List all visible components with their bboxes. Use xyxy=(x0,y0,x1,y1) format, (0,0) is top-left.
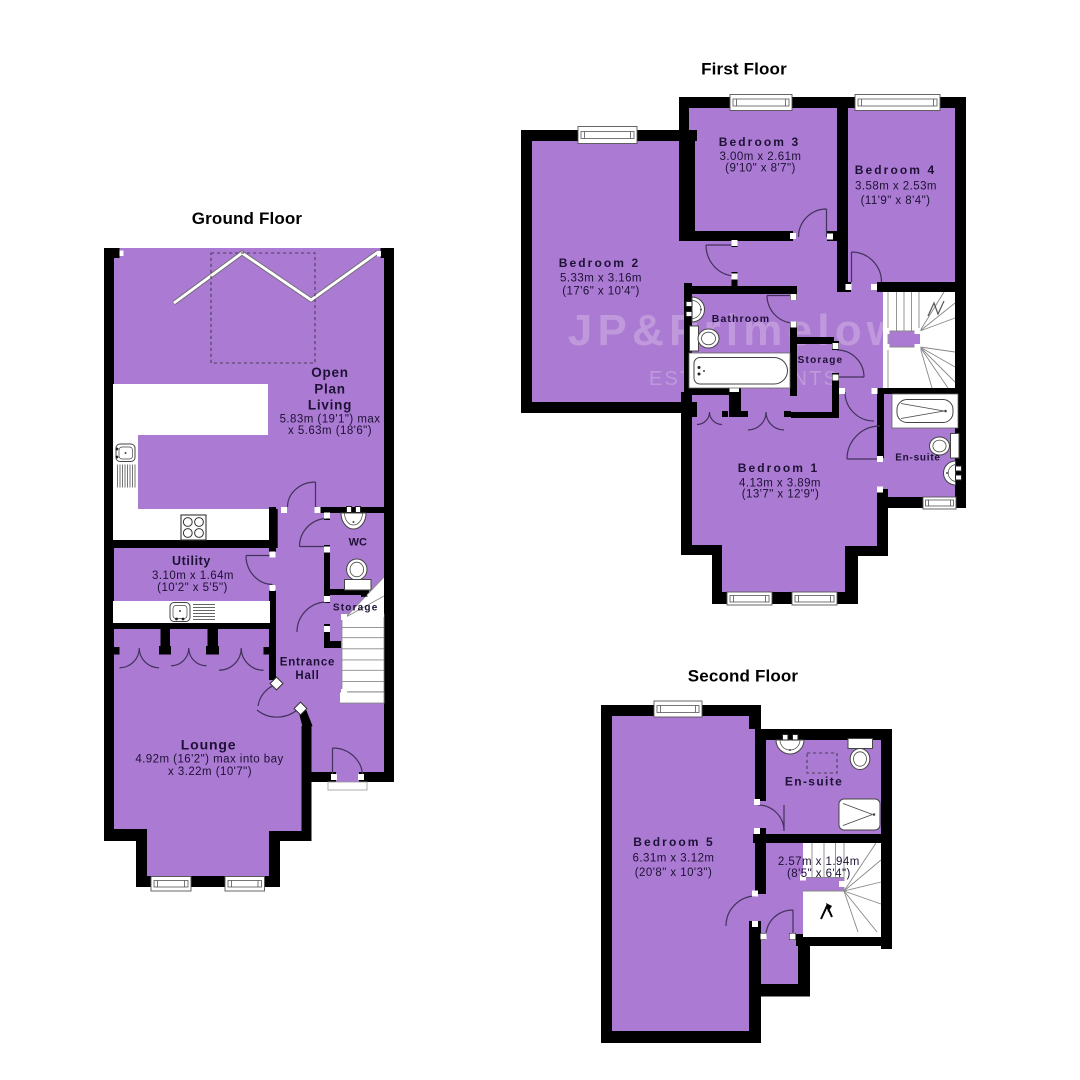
svg-text:(10'2" x 5'5"): (10'2" x 5'5") xyxy=(157,582,228,594)
svg-text:6.31m x 3.12m: 6.31m x 3.12m xyxy=(633,853,715,865)
svg-text:Storage: Storage xyxy=(333,603,379,614)
svg-text:(11'9" x 8'4"): (11'9" x 8'4") xyxy=(861,195,931,207)
svg-text:Hall: Hall xyxy=(295,670,319,682)
svg-text:Bedroom 2: Bedroom 2 xyxy=(559,256,641,270)
svg-text:Entrance: Entrance xyxy=(280,657,335,669)
svg-text:(9'10" x 8'7"): (9'10" x 8'7") xyxy=(725,163,796,175)
svg-text:Bedroom 4: Bedroom 4 xyxy=(855,163,937,177)
svg-text:Plan: Plan xyxy=(314,382,346,397)
svg-text:3.10m x 1.64m: 3.10m x 1.64m xyxy=(152,570,234,582)
svg-text:En-suite: En-suite xyxy=(785,775,843,789)
svg-text:4.92m (16'2") max into bay: 4.92m (16'2") max into bay xyxy=(135,754,283,766)
svg-text:Bedroom 5: Bedroom 5 xyxy=(633,835,715,849)
svg-text:3.00m x 2.61m: 3.00m x 2.61m xyxy=(720,151,802,163)
svg-text:(17'6" x 10'4"): (17'6" x 10'4") xyxy=(562,286,639,298)
svg-text:5.83m (19'1") max: 5.83m (19'1") max xyxy=(280,414,381,426)
svg-text:Storage: Storage xyxy=(798,355,844,366)
svg-text:(13'7" x 12'9"): (13'7" x 12'9") xyxy=(742,489,819,501)
svg-text:Lounge: Lounge xyxy=(181,737,237,753)
svg-text:Living: Living xyxy=(308,398,352,413)
svg-text:First Floor: First Floor xyxy=(701,60,787,79)
svg-text:Ground Floor: Ground Floor xyxy=(192,209,303,228)
svg-text:3.58m x 2.53m: 3.58m x 2.53m xyxy=(855,181,937,193)
svg-text:Open: Open xyxy=(311,365,349,380)
svg-text:(8'5" x 6'4"): (8'5" x 6'4") xyxy=(787,868,851,880)
svg-text:WC: WC xyxy=(349,537,367,549)
svg-text:5.33m x 3.16m: 5.33m x 3.16m xyxy=(560,273,642,285)
svg-text:Bathroom: Bathroom xyxy=(712,313,770,325)
svg-text:x 3.22m (10'7"): x 3.22m (10'7") xyxy=(168,766,252,778)
svg-text:x 5.63m (18'6"): x 5.63m (18'6") xyxy=(288,425,372,437)
svg-text:Second Floor: Second Floor xyxy=(688,667,799,686)
svg-text:En-suite: En-suite xyxy=(895,453,940,464)
svg-text:(20'8" x 10'3"): (20'8" x 10'3") xyxy=(635,867,712,879)
svg-text:Bedroom 1: Bedroom 1 xyxy=(738,461,820,475)
svg-text:Utility: Utility xyxy=(172,554,211,568)
svg-text:Bedroom 3: Bedroom 3 xyxy=(719,135,801,149)
svg-text:2.57m x 1.94m: 2.57m x 1.94m xyxy=(778,856,860,868)
